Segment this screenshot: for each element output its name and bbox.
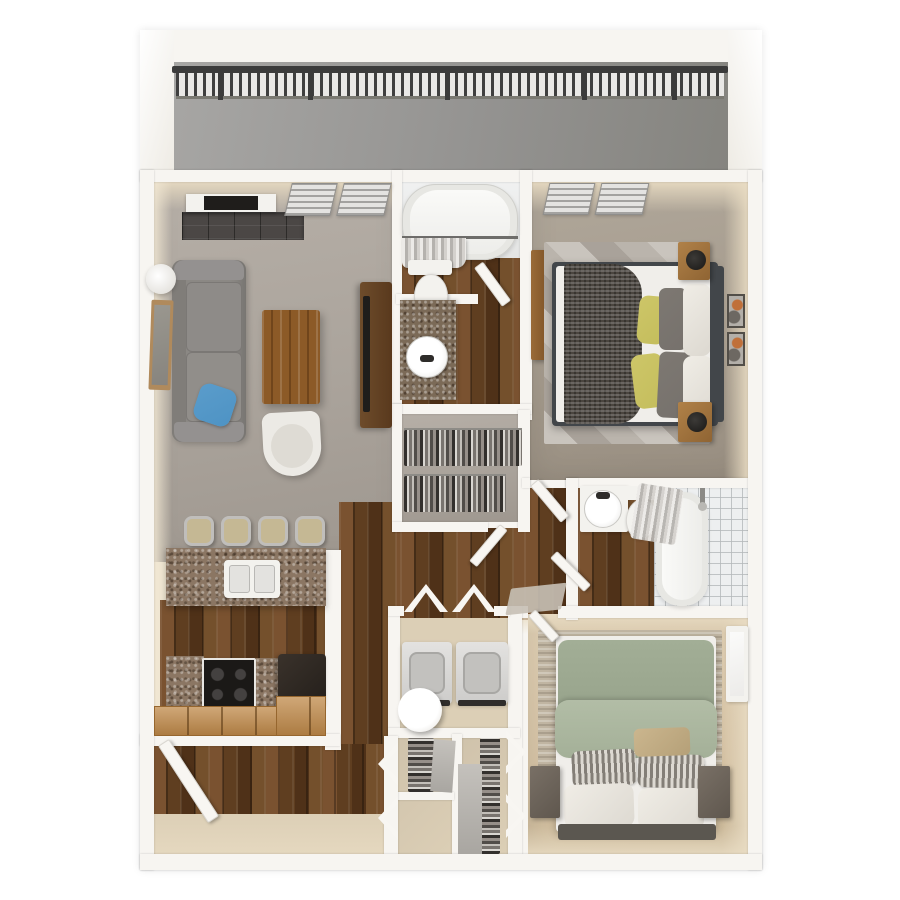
bath1-faucet <box>420 355 434 362</box>
balcony-railing-bottom-rail <box>176 96 724 99</box>
entry-floor-tile <box>152 814 402 858</box>
kitchen-counter-left <box>166 656 204 708</box>
wall-closet-bottom <box>392 522 488 532</box>
closet-clothes-row-2 <box>404 476 506 512</box>
dryer-base <box>458 700 506 706</box>
bar-stool <box>295 516 325 546</box>
fireplace-firebox <box>204 196 258 210</box>
floorplan-3d-render <box>0 0 900 900</box>
shower-curtain2 <box>630 483 684 546</box>
bed1-lamp-bottom <box>687 412 707 432</box>
closet-clothes-row-1 <box>404 430 522 466</box>
dryer-door <box>463 652 501 694</box>
coffee-table <box>262 310 320 404</box>
bar-stool <box>258 516 288 546</box>
closet3-clothes <box>480 738 500 854</box>
bed1-pillow-white-1 <box>683 284 711 356</box>
bed2-nightstand-right <box>698 766 730 818</box>
balcony-railing-top-rail <box>172 66 728 73</box>
balcony-side-wall-right <box>728 30 762 174</box>
balcony-railing-post <box>672 70 677 100</box>
tv-screen <box>363 296 370 412</box>
sofa-arm-bottom <box>174 422 244 442</box>
balcony-slider-blinds-left <box>284 183 338 216</box>
bar-stool <box>221 516 251 546</box>
bed2-pillow-tan <box>634 727 691 757</box>
sofa-cushion-top <box>186 282 242 352</box>
kitchen-stove <box>202 658 256 710</box>
sofa-back <box>172 260 186 442</box>
bed2-pillow-stripe-left <box>571 748 637 787</box>
bed2-pillow-stripe-right <box>637 753 704 789</box>
bedroom1-window-blinds-right <box>595 183 650 215</box>
bed1-headboard <box>710 266 724 422</box>
bed2-pillow-white-left <box>563 783 634 829</box>
wall-bedroom2-top <box>558 606 750 618</box>
wall-balcony-interior <box>140 170 762 182</box>
floor-lamp <box>146 264 176 294</box>
balcony-railing-post <box>445 70 450 100</box>
kitchen-cabinets-corner <box>276 696 326 736</box>
bed2-headboard <box>558 824 716 840</box>
wall-closet2-inner <box>396 792 454 800</box>
bedroom2-window-glass <box>730 632 744 696</box>
wall-bath1-closet <box>392 404 532 414</box>
balcony-railing-balusters <box>176 72 724 96</box>
bedroom1-wall-face-right <box>724 180 750 480</box>
kitchen-cabinets-lower <box>154 706 278 736</box>
outer-wall-right <box>748 170 762 870</box>
balcony-slider-blinds-right <box>336 183 392 216</box>
wall-bedroom1-bottom-stub <box>522 478 530 488</box>
bedroom1-art-frame-1 <box>727 294 745 328</box>
kitchen-sink-basin-right <box>254 565 275 593</box>
outer-wall-bottom <box>140 854 762 870</box>
balcony-railing-post <box>582 70 587 100</box>
laundry-basket <box>398 688 442 732</box>
wall-bath2-left <box>566 478 578 620</box>
wall-living-closet <box>392 404 402 532</box>
accent-chair-seat <box>271 424 313 468</box>
shower-head2 <box>698 502 707 511</box>
kitchen-sink-basin-left <box>229 565 250 593</box>
bath2-faucet <box>596 492 610 499</box>
wall-mirror-glass <box>152 305 171 386</box>
bedroom1-window-blinds-left <box>543 183 596 215</box>
bed1-lamp-top <box>686 250 706 270</box>
bed2-nightstand-left <box>530 766 560 818</box>
balcony-railing-post <box>308 70 313 100</box>
bed1-blanket <box>564 264 642 424</box>
balcony-side-wall-left <box>140 30 174 174</box>
toilet1-tank <box>408 260 452 275</box>
bedroom1-art-frame-2 <box>727 332 745 366</box>
balcony-railing-post <box>218 70 223 100</box>
fireplace-tile-surround <box>182 212 304 240</box>
wall-kitchen-right <box>325 550 341 750</box>
bar-stool <box>184 516 214 546</box>
closet2-door-panel <box>430 739 456 792</box>
closet3-door-panel <box>458 764 482 854</box>
sofa-arm-top <box>174 260 244 280</box>
wall-laundry-top-stub-left <box>388 606 404 616</box>
